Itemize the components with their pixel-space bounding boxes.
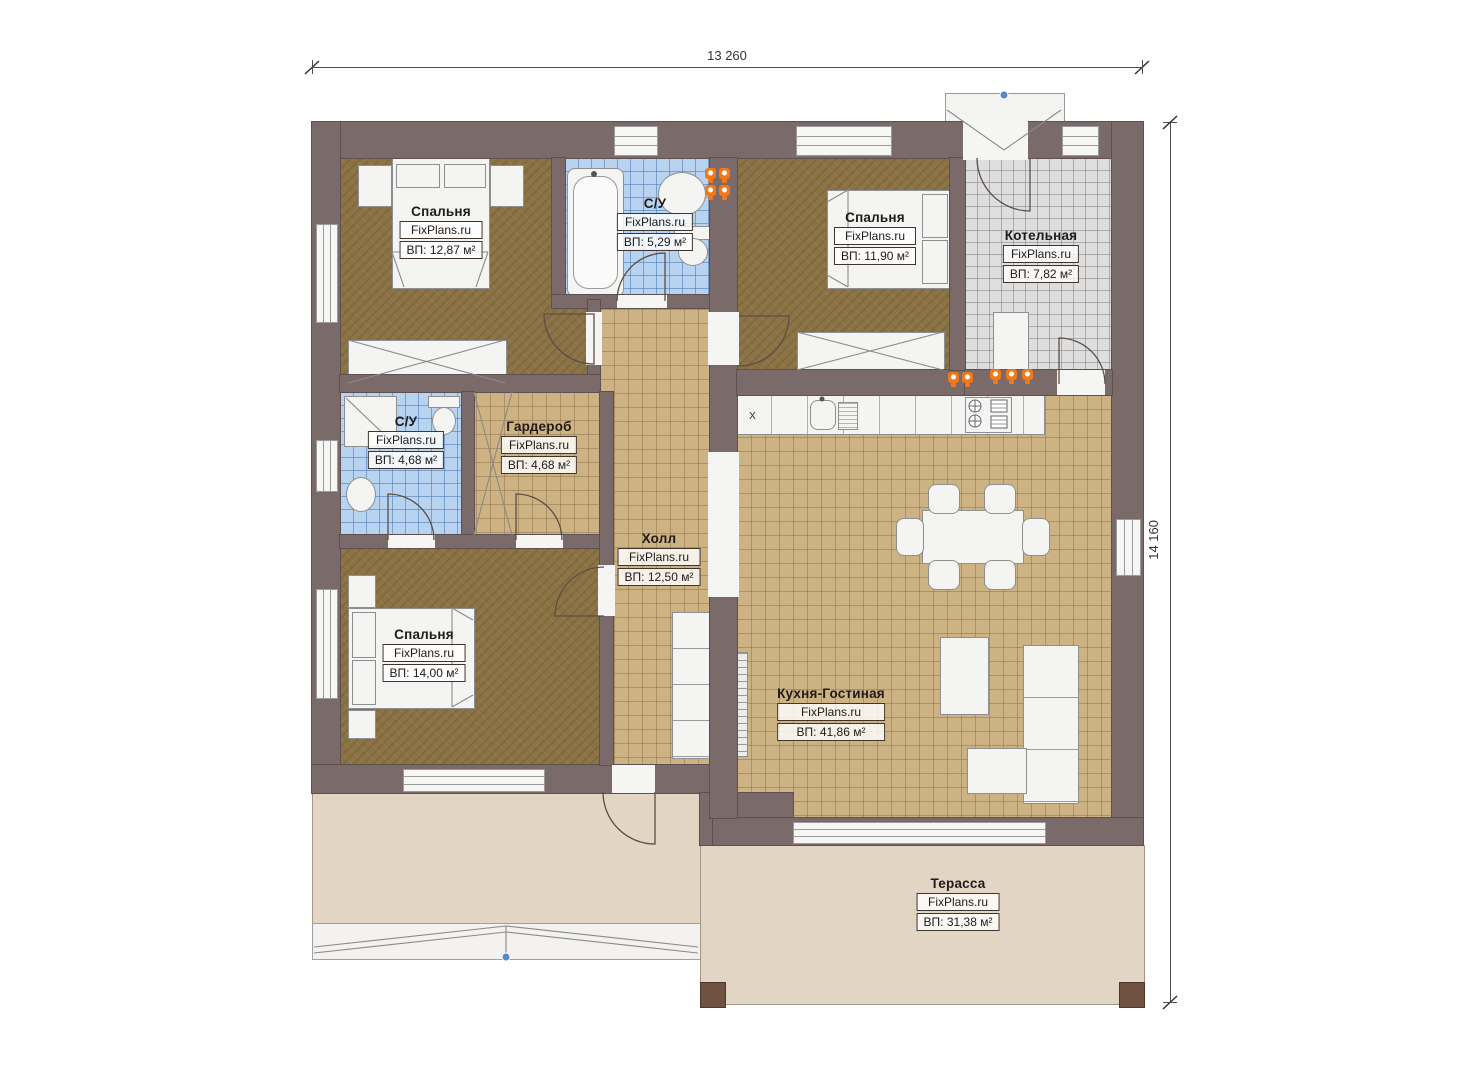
room-name: Гардероб xyxy=(501,419,577,434)
door-opening-wardrobe xyxy=(516,535,563,548)
room-area: ВП: 11,90 м² xyxy=(834,247,916,265)
outlet-icon xyxy=(948,372,959,383)
coffee-table xyxy=(940,637,989,715)
outlet-icon xyxy=(1006,369,1017,380)
sofa-chaise xyxy=(967,748,1027,794)
sink xyxy=(346,477,376,512)
room-name: Спальня xyxy=(383,627,466,642)
door-opening-bedroom-top-left xyxy=(586,312,602,365)
door-opening-entry xyxy=(963,120,1028,160)
room-name: Холл xyxy=(618,531,701,546)
window-bedroom-bottom-left xyxy=(316,589,338,699)
wall-bed1-bottom xyxy=(340,375,600,392)
door-opening-bathroom-top xyxy=(617,295,667,308)
chair xyxy=(1022,518,1050,556)
wall-bath2-wardrobe xyxy=(462,392,474,535)
label-bathroom-left: С/У FixPlans.ru ВП: 4,68 м² xyxy=(368,414,444,469)
wall-right xyxy=(1112,122,1143,845)
chair xyxy=(984,484,1016,514)
sofa-main xyxy=(1023,645,1079,804)
brand-watermark: FixPlans.ru xyxy=(383,644,466,662)
terrace-post-right xyxy=(1119,982,1145,1008)
dining-table xyxy=(922,510,1024,564)
room-area: ВП: 41,86 м² xyxy=(777,723,885,741)
boiler-unit xyxy=(993,312,1029,374)
brand-watermark: FixPlans.ru xyxy=(501,436,577,454)
chair xyxy=(928,560,960,590)
window-bedroom3-south xyxy=(403,769,545,792)
porch-canopy xyxy=(312,923,702,960)
brand-watermark: FixPlans.ru xyxy=(1003,245,1079,263)
nightstand xyxy=(358,165,392,207)
wall-bed2-boiler xyxy=(950,158,965,370)
window-bedroom-top-right xyxy=(796,126,892,156)
chair xyxy=(896,518,924,556)
room-name: Терасса xyxy=(917,876,1000,891)
pillow xyxy=(352,612,376,658)
brand-watermark: FixPlans.ru xyxy=(368,431,444,449)
kitchen-sink xyxy=(810,400,836,430)
outlet-icon xyxy=(990,369,1001,380)
label-bedroom-top-left: Спальня FixPlans.ru ВП: 12,87 м² xyxy=(400,204,483,259)
room-name: Спальня xyxy=(834,210,916,225)
kitchen-unit-x: x xyxy=(735,395,770,433)
dim-ext xyxy=(1163,122,1177,123)
brand-watermark: FixPlans.ru xyxy=(618,548,701,566)
room-area: ВП: 12,50 м² xyxy=(618,568,701,586)
window-kitchen-right xyxy=(1116,519,1141,576)
dimension-height: 14 160 xyxy=(1146,520,1161,560)
room-area: ВП: 12,87 м² xyxy=(400,241,483,259)
chair xyxy=(984,560,1016,590)
pillow xyxy=(922,194,948,238)
room-name: Котельная xyxy=(1003,228,1079,243)
nightstand xyxy=(348,575,376,608)
dimension-line-right xyxy=(1170,122,1171,1003)
terrace-left xyxy=(312,793,702,925)
outlet-icon xyxy=(705,185,716,196)
door-opening-boiler-kitchen xyxy=(1057,370,1105,395)
label-hall: Холл FixPlans.ru ВП: 12,50 м² xyxy=(618,531,701,586)
pillow xyxy=(444,164,486,188)
label-boiler-room: Котельная FixPlans.ru ВП: 7,82 м² xyxy=(1003,228,1079,283)
outlet-icon xyxy=(719,168,730,179)
outlet-icon xyxy=(1022,369,1033,380)
label-wardrobe-room: Гардероб FixPlans.ru ВП: 4,68 м² xyxy=(501,419,577,474)
room-area: ВП: 5,29 м² xyxy=(617,233,693,251)
label-terrace: Терасса FixPlans.ru ВП: 31,38 м² xyxy=(917,876,1000,931)
nightstand xyxy=(348,710,376,739)
door-opening-bedroom-top-right xyxy=(708,312,739,365)
room-area: ВП: 4,68 м² xyxy=(368,451,444,469)
brand-watermark: FixPlans.ru xyxy=(777,703,885,721)
room-name: Кухня-Гостиная xyxy=(777,686,885,701)
brand-watermark: FixPlans.ru xyxy=(400,221,483,239)
window-bathroom-left xyxy=(316,440,338,492)
door-opening-bedroom-bottom-left xyxy=(598,565,615,616)
label-bedroom-top-right: Спальня FixPlans.ru ВП: 11,90 м² xyxy=(834,210,916,265)
door-opening-bathroom-left xyxy=(388,535,435,548)
pillow xyxy=(352,660,376,705)
label-bathroom-top: С/У FixPlans.ru ВП: 5,29 м² xyxy=(617,196,693,251)
room-name: С/У xyxy=(368,414,444,429)
stove xyxy=(965,397,1012,433)
room-area: ВП: 31,38 м² xyxy=(917,913,1000,931)
window-bedroom-top-left xyxy=(316,224,338,323)
room-name: С/У xyxy=(617,196,693,211)
window-bathroom-top xyxy=(614,126,658,156)
outlet-icon xyxy=(719,185,730,196)
dim-ext xyxy=(312,60,313,74)
dimension-width: 13 260 xyxy=(707,48,747,63)
brand-watermark: FixPlans.ru xyxy=(617,213,693,231)
passage-hall-kitchen xyxy=(708,452,739,597)
pillow xyxy=(922,240,948,284)
hall-closet xyxy=(672,612,714,759)
room-name: Спальня xyxy=(400,204,483,219)
pillow xyxy=(396,164,440,188)
room-area: ВП: 7,82 м² xyxy=(1003,265,1079,283)
brand-watermark: FixPlans.ru xyxy=(834,227,916,245)
sink-drainer xyxy=(838,402,858,430)
window-kitchen-terrace xyxy=(793,822,1046,844)
window-boiler xyxy=(1062,126,1099,156)
brand-watermark: FixPlans.ru xyxy=(917,893,1000,911)
terrace-post-left xyxy=(700,982,726,1008)
dim-ext xyxy=(1163,1002,1177,1003)
room-area: ВП: 14,00 м² xyxy=(383,664,466,682)
floor-plan: x xyxy=(0,0,1474,1080)
dim-ext xyxy=(1142,60,1143,74)
bathtub xyxy=(567,168,624,297)
outlet-icon xyxy=(705,168,716,179)
label-kitchen-living: Кухня-Гостиная FixPlans.ru ВП: 41,86 м² xyxy=(777,686,885,741)
wall-bed2-kitchen xyxy=(737,370,965,395)
door-opening-hall-terrace xyxy=(612,765,655,793)
wall-bed1-bath xyxy=(552,158,565,300)
dimension-line-top xyxy=(312,67,1143,68)
nightstand xyxy=(490,165,524,207)
outlet-icon xyxy=(962,372,973,383)
room-area: ВП: 4,68 м² xyxy=(501,456,577,474)
chair xyxy=(928,484,960,514)
wardrobe-closet xyxy=(797,332,945,372)
label-bedroom-bottom-left: Спальня FixPlans.ru ВП: 14,00 м² xyxy=(383,627,466,682)
